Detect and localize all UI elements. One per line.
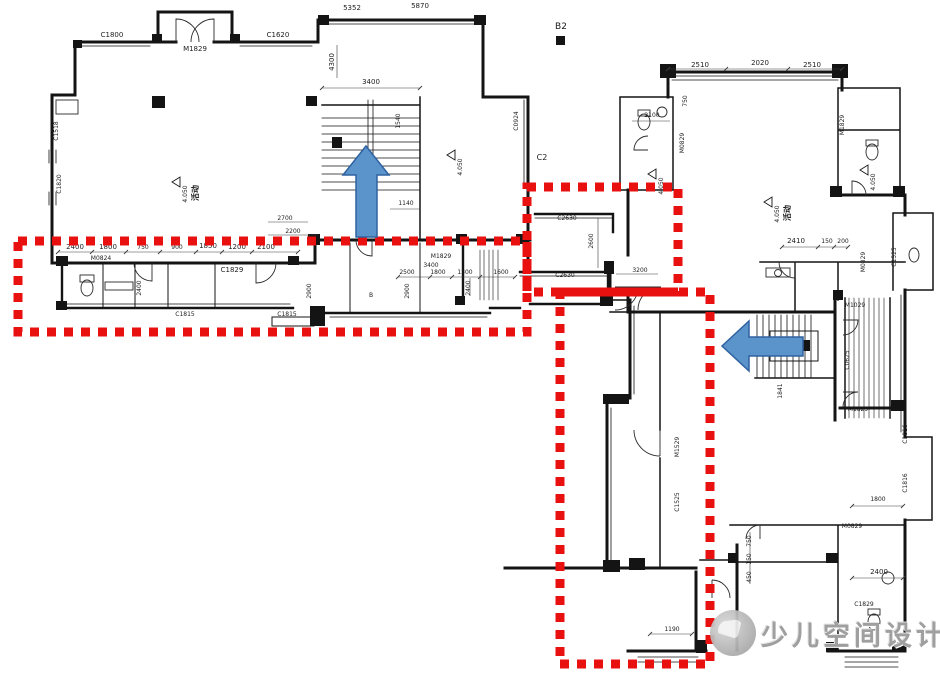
fixtures-layer (56, 100, 919, 630)
dim-label: C2630 (557, 215, 577, 222)
dim-label: 2400 (870, 568, 888, 576)
dim-label: C1829 (854, 601, 874, 608)
dim-label: 2700 (277, 215, 292, 222)
dim-label: C1815 (277, 311, 297, 318)
dim-label: 1190 (664, 626, 679, 633)
dim-label: 1140 (398, 200, 413, 207)
floor-plan-page: { "watermark": { "text": "少儿空间设计" }, "co… (0, 0, 940, 679)
dim-label: M0829 (679, 133, 686, 154)
dim-label: C1816 (902, 473, 909, 493)
dim-label: 2510 (691, 61, 709, 69)
dim-label: 2900 (306, 283, 313, 298)
dim-label: 750 (746, 535, 753, 547)
elevation-value: 4.050 (870, 173, 877, 190)
dim-label: 2400 (136, 280, 143, 295)
dim-label: 4300 (328, 53, 336, 71)
dim-label: M1829 (431, 253, 452, 260)
dim-label: C1620 (267, 31, 290, 39)
elevation-marker: 4.050 (860, 165, 877, 191)
dim-label: 2500 (399, 269, 414, 276)
elevation-value: 4.050 (457, 158, 464, 175)
dim-label: C2 (537, 153, 548, 162)
dim-label: 5352 (343, 4, 361, 12)
elevation-triangle-icon (172, 177, 180, 187)
dim-label: 2410 (787, 237, 805, 245)
dim-label: 2020 (751, 59, 769, 67)
dim-label: M1829 (848, 406, 869, 413)
dim-label: 200 (837, 238, 849, 245)
dim-label: 450 (746, 571, 753, 583)
elevation-marker: 4.050 (447, 150, 464, 176)
dim-label: M0829 (842, 523, 863, 530)
watermark-text: 少儿空间设计 (761, 614, 940, 653)
dim-label: 1600 (493, 269, 508, 276)
elevation-marker: 4.050活动 (764, 197, 792, 223)
dim-label: M1829 (183, 45, 207, 53)
dim-label: M0824 (91, 255, 112, 262)
dim-label: 3400 (423, 262, 438, 269)
room-name-label: 活动 (190, 185, 200, 201)
dim-label: C1815 (175, 311, 195, 318)
elevation-triangle-icon (648, 169, 656, 179)
elevation-value: 4.050 (182, 185, 189, 202)
direction-arrows-layer (343, 146, 803, 371)
dim-label: C0625 (844, 350, 851, 370)
dim-label: M1829 (839, 115, 846, 136)
elevation-value: 4.050 (774, 205, 781, 222)
dim-label: C1820 (56, 174, 63, 194)
dim-label: 2400 (465, 280, 472, 295)
floor-plan-drawing: C1800M1829C16205352587043003400154011402… (0, 0, 940, 679)
elevation-triangle-icon (447, 150, 455, 160)
room-name-label: 活动 (782, 205, 792, 221)
dim-label: 2200 (285, 228, 300, 235)
dim-label: 1800 (870, 496, 885, 503)
dim-label: 3400 (362, 78, 380, 86)
dim-label: 2100 (644, 112, 659, 119)
dim-label: 1841 (777, 383, 784, 398)
dim-label: 1800 (430, 269, 445, 276)
dim-label: M1029 (845, 302, 866, 309)
dim-label: 1540 (395, 113, 402, 128)
dim-label: C1800 (101, 31, 124, 39)
dim-label: 150 (746, 553, 753, 565)
dim-label: B (369, 292, 373, 299)
direction-arrow-up (343, 146, 389, 237)
dim-label: C2630 (555, 272, 575, 279)
dim-label: C1816 (902, 424, 909, 444)
dim-label: C1518 (53, 121, 60, 141)
watermark-logo-icon (710, 610, 756, 656)
elevation-triangle-icon (860, 165, 868, 175)
dim-label: B2 (555, 22, 567, 32)
dim-label: 3200 (632, 267, 647, 274)
highlight-box-lower-wing (560, 292, 710, 664)
dim-label: 150 (821, 238, 833, 245)
elevation-marker: 4.050活动 (172, 177, 200, 203)
dim-label: 2510 (803, 61, 821, 69)
dim-label: 2600 (588, 233, 595, 248)
dim-label: M1529 (674, 437, 681, 458)
dim-label: C1829 (221, 266, 244, 274)
dim-label: 1300 (457, 269, 472, 276)
direction-arrow-left (722, 321, 803, 371)
dim-label: M0829 (860, 252, 867, 273)
elevation-triangle-icon (764, 197, 772, 207)
dim-label: C0924 (513, 111, 520, 131)
watermark: 少儿空间设计 (710, 610, 940, 656)
dim-label: C1525 (891, 247, 898, 267)
dim-label: 750 (682, 95, 689, 107)
dim-label: 2900 (404, 283, 411, 298)
dim-label: C1525 (674, 492, 681, 512)
dim-label: 5870 (411, 2, 429, 10)
